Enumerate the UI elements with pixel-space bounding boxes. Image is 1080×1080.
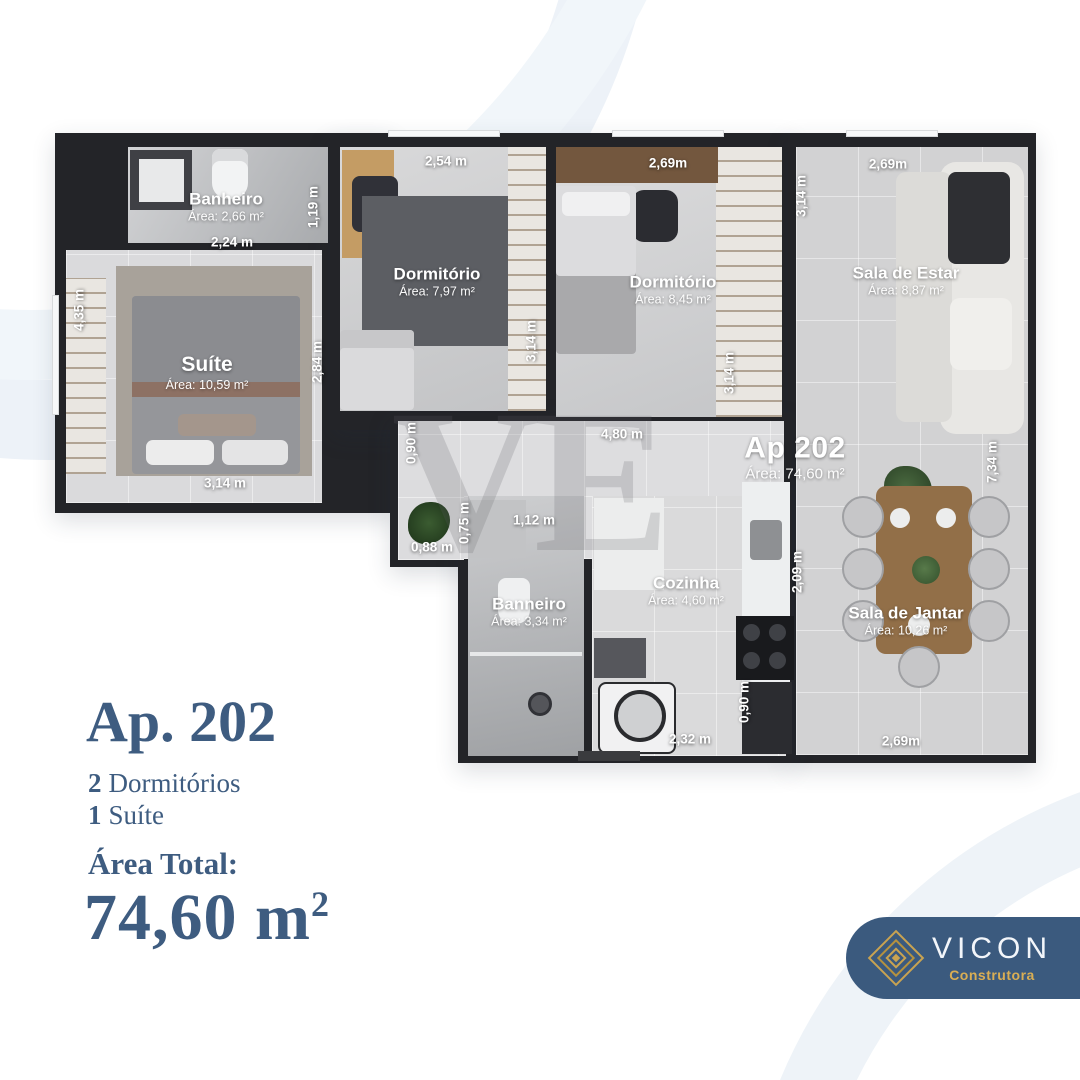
room-label-banheiro-2: Banneiro Área: 3,34 m² [491,595,567,630]
total-area-value: 74,60 m2 [84,880,330,956]
sofa-cushion [950,298,1012,370]
total-area-label: Área Total: [88,846,238,882]
dim-label: 2,69m [649,156,687,171]
table-plant [912,556,940,584]
bathroom1-sink [139,159,184,202]
room-label-dormitorio-2: Dormitório Área: 8,45 m² [630,273,717,308]
room-area: Área: 2,66 m² [188,210,264,225]
dim-label: 3,14 m [794,175,809,217]
dining-chair-4 [968,496,1010,538]
dim-label: 4,80 m [601,427,643,442]
room-name: Cozinha [648,574,724,594]
dim-label: 0,75 m [457,502,472,544]
dim-label: 2,69m [869,157,907,172]
room-name: Dormitório [630,273,717,293]
bathroom2-glass [470,652,582,656]
vicon-diamond-icon [872,934,920,982]
window-dormitorio-1 [388,130,500,137]
unit-name: Ap 202 [744,430,845,465]
dining-chair-6 [968,600,1010,642]
dim-label: 4,35 m [72,289,87,331]
room-name: Suíte [166,353,249,378]
window-suite [52,295,59,415]
room-label-dormitorio-1: Dormitório Área: 7,97 m² [394,265,481,300]
area-unit: m [255,881,311,954]
stove-burner-4 [769,652,786,669]
watermark-letters: VE [392,364,665,600]
dim-label: 0,90 m [737,681,752,723]
dim-label: 3,14 m [524,320,539,362]
dining-chair-2 [842,548,884,590]
room-area: Área: 7,97 m² [394,285,481,300]
dining-chair-1 [842,496,884,538]
area-number: 74,60 [84,881,238,954]
dim-label: 2,69m [882,734,920,749]
dim-label: 2,54 m [425,154,467,169]
room-area: Área: 3,34 m² [491,615,567,630]
dim-label: 0,88 m [411,540,453,555]
page-title: Ap. 202 [86,688,276,755]
washer-door [614,690,666,742]
logo-brand-name: VICON [932,934,1052,964]
dim-label: 2,24 m [211,235,253,250]
room-label-cozinha: Cozinha Área: 4,60 m² [648,574,724,609]
window-dormitorio-2 [612,130,724,137]
vicon-logo: VICON Construtora [846,917,1080,999]
stove-burner-1 [743,624,760,641]
suite-label: Suíte [109,800,165,830]
dim-label: 2,09 m [790,551,805,593]
bedrooms-line: 2Dormitórios [88,768,241,799]
shower-drain [528,692,552,716]
bedrooms-count: 2 [88,768,102,798]
room-area: Área: 10,26 m² [848,624,963,639]
dim-label: 0,90 m [404,422,419,464]
room-area: Área: 8,45 m² [630,293,717,308]
dim-label: 1,12 m [513,513,555,528]
bedrooms-label: Dormitórios [109,768,241,798]
kitchen-cabinet [594,638,646,678]
sofa-throw [948,172,1010,264]
threshold-kitchen [578,751,640,761]
room-name: Banneiro [491,595,567,615]
room-label-banheiro-suite: Banheiro Área: 2,66 m² [188,190,264,225]
dim-label: 2,84 m [310,341,325,383]
dorm2-pillow [562,192,630,216]
stove-burner-3 [743,652,760,669]
logo-text: VICON Construtora [932,934,1052,983]
window-sala [846,130,938,137]
area-exponent: 2 [311,884,330,924]
dim-label: 3,14 m [722,352,737,394]
dining-chair-7 [898,646,940,688]
dim-label: 7,34 m [985,441,1000,483]
room-name: Dormitório [394,265,481,285]
unit-label-ap202: Ap 202 Área: 74,60 m² [744,430,845,483]
room-area: Área: 4,60 m² [648,594,724,609]
flyer-canvas: VE Banheiro Área: 2,66 m² Dormitório Áre… [0,0,1080,1080]
suite-cushion [178,414,256,436]
room-label-sala-de-estar: Sala de Estar Área: 8,87 m² [853,264,960,299]
room-label-sala-de-jantar: Sala de Jantar Área: 10,26 m² [848,604,963,639]
dim-label: 1,19 m [306,186,321,228]
suite-count: 1 [88,800,102,830]
room-area: Área: 10,59 m² [166,378,249,393]
dorm2-chair [632,190,678,242]
room-name: Sala de Estar [853,264,960,284]
room-name: Banheiro [188,190,264,210]
room-label-suite: Suíte Área: 10,59 m² [166,353,249,393]
unit-area: Área: 74,60 m² [744,466,845,484]
logo-subtitle: Construtora [949,967,1035,983]
dim-label: 2,32 m [669,732,711,747]
table-plate-1 [890,508,910,528]
suite-pillow-2 [222,440,288,465]
dorm2-shelf [556,147,718,183]
dining-chair-5 [968,548,1010,590]
suite-line: 1Suíte [88,800,164,831]
room-name: Sala de Jantar [848,604,963,624]
suite-pillow-1 [146,440,214,465]
island-sink [750,520,782,560]
table-plate-2 [936,508,956,528]
dim-label: 3,14 m [204,476,246,491]
room-area: Área: 8,87 m² [853,284,960,299]
stove-burner-2 [769,624,786,641]
